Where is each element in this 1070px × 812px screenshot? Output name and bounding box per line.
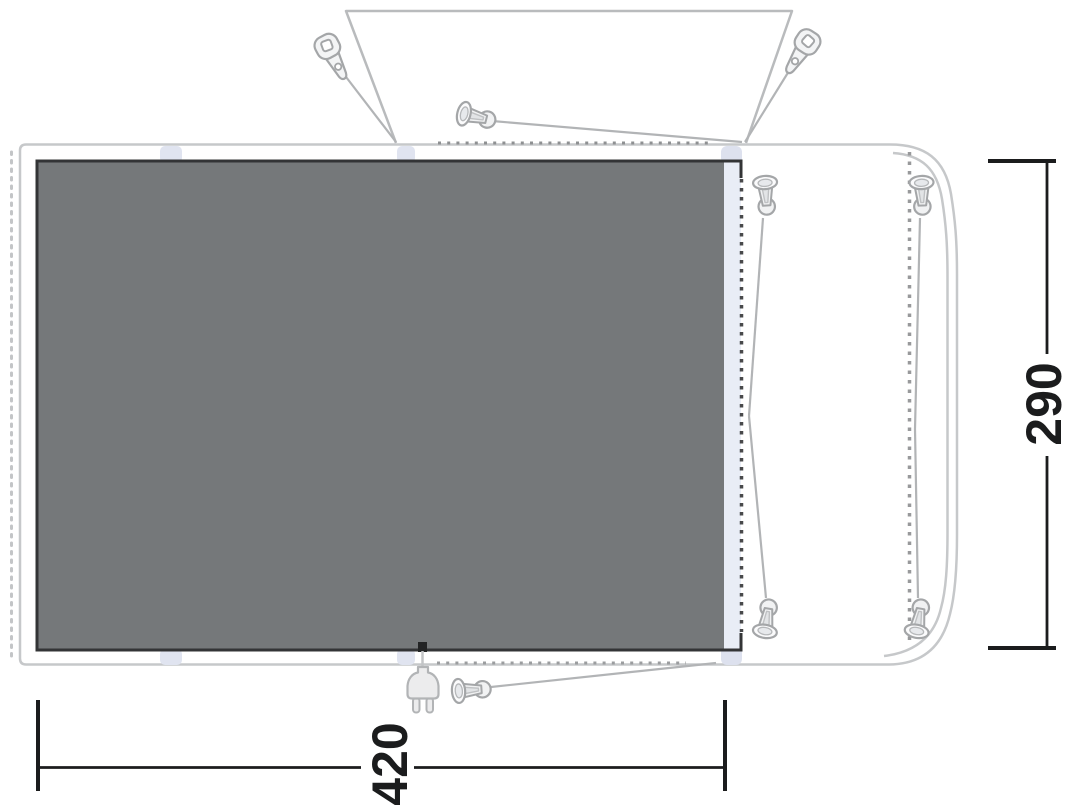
cable-inlet: [418, 642, 427, 652]
canopy-panel: [346, 11, 792, 143]
width-dimension-label: 420: [362, 722, 418, 805]
peg-icon: [451, 677, 491, 704]
power-plug-icon: [408, 667, 439, 713]
floorplan-canvas: 420 290: [0, 0, 1070, 812]
width-dimension: 420: [38, 700, 725, 806]
groundsheet: [37, 161, 741, 650]
depth-dimension-label: 290: [1016, 362, 1070, 445]
groundsheet-fill: [37, 161, 725, 650]
awning-floorplan-diagram: 420 290: [0, 0, 1070, 812]
guy-line: [491, 663, 716, 687]
tunnel-strip: [724, 162, 741, 649]
peg-clip-icon: [311, 31, 355, 85]
depth-dimension: 290: [988, 161, 1070, 648]
